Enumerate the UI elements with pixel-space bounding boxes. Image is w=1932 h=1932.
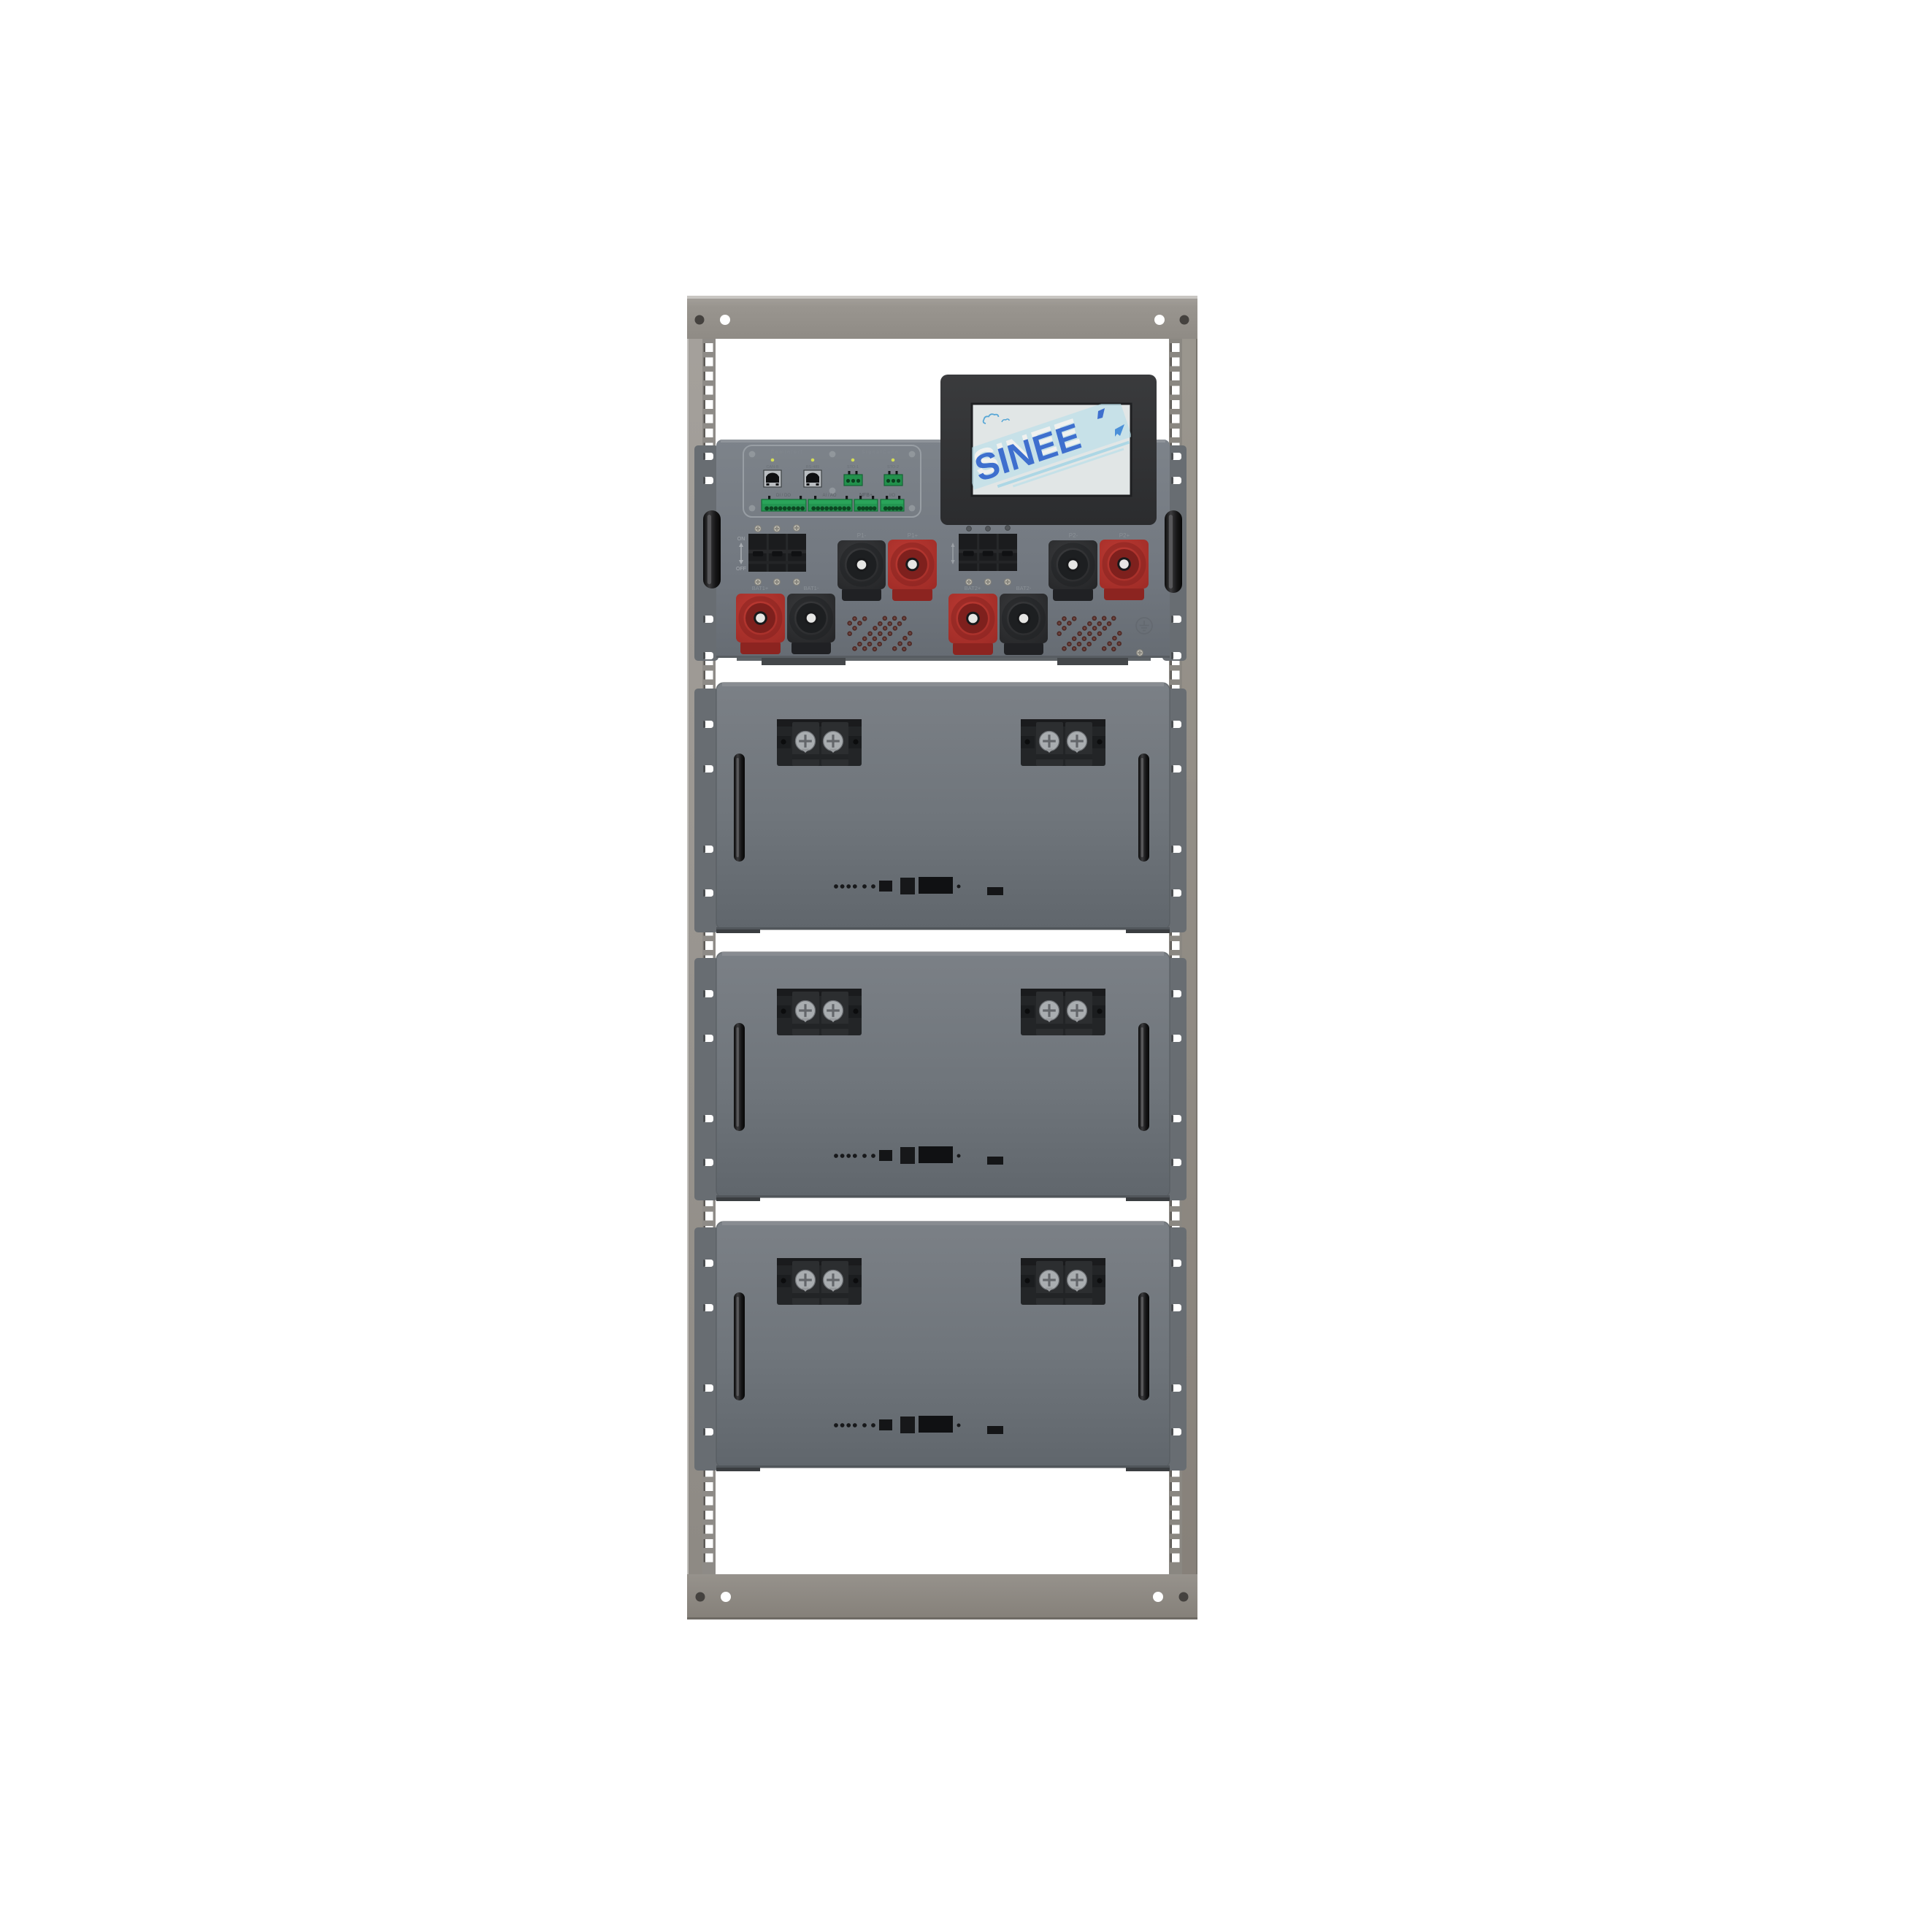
svg-text:ON: ON [737,537,745,542]
svg-text:BAT2-: BAT2- [1016,585,1032,591]
svg-text:BAT1+: BAT1+ [752,585,769,591]
svg-text:S i g n a l C o n n: S i g n a l C o n n [862,450,898,455]
svg-text:P1+: P1+ [908,532,919,539]
svg-text:BAT1-: BAT1- [804,585,819,591]
svg-text:BAT2+: BAT2+ [965,585,981,591]
svg-text:RS-485: RS-485 [806,465,820,469]
svg-text:DI / DO: DI / DO [776,494,791,498]
svg-text:P1-: P1- [857,532,867,539]
svg-text:STO-2: STO-2 [887,465,899,469]
svg-text:AI / AO: AI / AO [822,494,836,498]
svg-text:STO-1: STO-1 [847,465,859,469]
svg-text:I/O: I/O [889,494,895,498]
svg-text:P2+: P2+ [1119,532,1130,539]
svg-text:CAN-B: CAN-B [766,465,778,469]
svg-text:C o m I n t e r f: C o m I n t e r f [771,450,802,455]
svg-text:P2-: P2- [1069,532,1078,539]
svg-text:OFF: OFF [736,567,746,572]
